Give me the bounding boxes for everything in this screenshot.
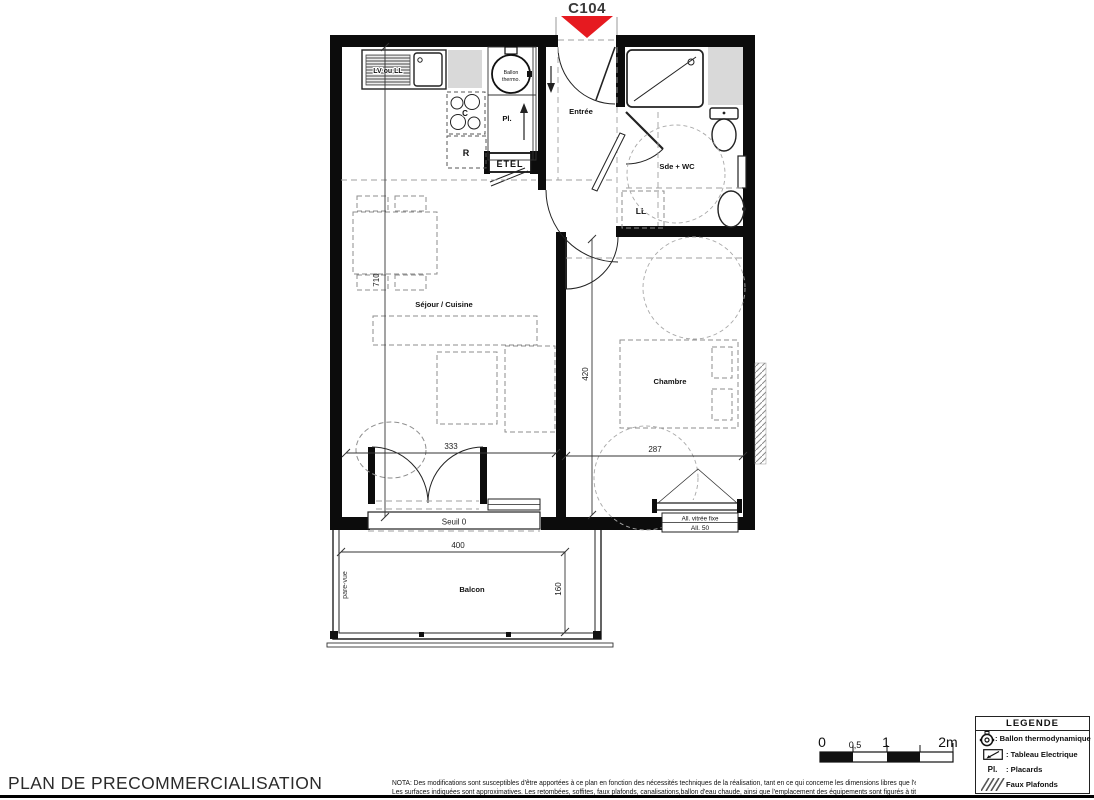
duct-shaft xyxy=(448,50,482,88)
radiator xyxy=(738,156,746,188)
chair xyxy=(395,275,426,290)
basin xyxy=(718,191,744,227)
sofa-chaise xyxy=(505,346,555,432)
french-door-swing xyxy=(372,447,428,503)
bathroom-door-swing xyxy=(626,149,663,164)
pillow xyxy=(712,347,732,378)
room-label-balcon: Balcon xyxy=(459,585,485,594)
dim-sejour-height: 710 xyxy=(372,273,381,287)
dining-table xyxy=(353,212,437,274)
chair xyxy=(395,196,426,211)
closet: Ballon thermo. Pl. xyxy=(488,47,536,160)
dim-balcon-depth: 160 xyxy=(554,582,563,596)
legend-label: : Tableau Electrique xyxy=(1006,750,1078,759)
entrance: Entrée xyxy=(546,17,625,262)
kitchen-sink xyxy=(414,53,442,86)
threshold-label: Seuil 0 xyxy=(442,518,467,527)
legend-row-faux-plafonds: Faux Plafonds xyxy=(976,777,1089,792)
turning-circle xyxy=(643,237,745,339)
scale-1: 1 xyxy=(882,734,890,750)
scale-bar: 0 0,5 1 2m xyxy=(818,734,958,762)
pillow xyxy=(712,389,732,420)
ballon-thermodynamique-icon xyxy=(979,731,995,747)
etel-label: ETEL xyxy=(496,159,523,169)
legend-box: LEGENDE : Ballon thermodynamique : Table… xyxy=(975,716,1090,794)
duct-shaft xyxy=(708,47,743,105)
room-label-sde-wc: Sde + WC xyxy=(659,162,695,171)
coffee-table xyxy=(437,352,497,424)
up-arrow-icon xyxy=(520,103,528,113)
placards-abbrev: Pl. xyxy=(979,765,1006,774)
unit-marker: C104 xyxy=(561,0,613,38)
french-door-swing xyxy=(428,447,483,502)
tableau-electrique-icon xyxy=(979,749,1006,760)
legend-label: : Placards xyxy=(1006,765,1042,774)
unit-location-arrow-icon xyxy=(561,16,613,38)
balcony: Balcon pare-vue xyxy=(327,530,613,647)
faux-plafonds-hatch-icon xyxy=(979,778,1006,791)
entry-direction-arrow-icon xyxy=(547,83,555,93)
window-type-label: All. vitrée fixe xyxy=(682,516,719,523)
toilet-bowl xyxy=(712,119,736,151)
floor-plan-page: C104 Entrée xyxy=(0,0,1094,800)
sofa xyxy=(373,316,537,345)
balcony-railing-inner xyxy=(339,530,595,633)
dim-chambre-height: 420 xyxy=(581,367,590,381)
scale-0: 0 xyxy=(818,734,826,750)
entrance-door-leaf xyxy=(596,47,615,100)
balcony-slab-edge xyxy=(327,643,613,647)
page-title: PLAN DE PRECOMMERCIALISATION xyxy=(8,773,322,794)
window-sill-height-label: All. 50 xyxy=(691,525,710,532)
pare-vue-label: pare-vue xyxy=(342,571,349,599)
unit-label: C104 xyxy=(568,0,606,17)
cooktop-label: C xyxy=(462,109,468,118)
bedroom: Chambre All. vitrée fixe All. 50 xyxy=(566,237,745,532)
dim-chambre-width: 287 xyxy=(648,445,662,454)
room-label-entree: Entrée xyxy=(569,107,593,116)
basin-faucet xyxy=(742,207,746,211)
floor-plan: C104 Entrée xyxy=(0,0,1094,800)
scale-2m: 2m xyxy=(938,734,957,750)
ballon-label-1: Ballon xyxy=(504,70,519,76)
bathroom-door-leaf xyxy=(626,112,663,149)
dim-balcon-width: 400 xyxy=(451,541,465,550)
scale-0-5: 0,5 xyxy=(849,740,862,750)
legend-label: Faux Plafonds xyxy=(1006,780,1058,789)
legend-row-tableau: : Tableau Electrique xyxy=(976,746,1089,761)
room-label-chambre: Chambre xyxy=(654,377,687,386)
chair xyxy=(357,196,388,211)
entrance-door-swing xyxy=(558,47,615,104)
appliance-label: LV ou LL xyxy=(373,68,403,75)
legend-label: : Ballon thermodynamique xyxy=(995,734,1091,743)
party-wall-hatch xyxy=(755,363,766,464)
placard-label: Pl. xyxy=(502,114,511,123)
washing-machine-label: LL xyxy=(636,206,646,216)
dim-sejour-width: 333 xyxy=(444,442,458,451)
room-label-sejour: Séjour / Cuisine xyxy=(415,300,472,309)
ballon-label-2: thermo. xyxy=(502,77,520,83)
legend-row-ballon: : Ballon thermodynamique xyxy=(976,731,1089,746)
open-door-leaf xyxy=(592,133,625,191)
footer-divider xyxy=(0,795,1094,798)
nota-line-1: NOTA: Des modifications sont susceptible… xyxy=(392,778,916,787)
fridge-label: R xyxy=(463,148,470,158)
legend-row-placards: Pl. : Placards xyxy=(976,762,1089,777)
bathroom: LL Sde + WC xyxy=(622,47,746,228)
legend-title: LEGENDE xyxy=(976,717,1089,731)
